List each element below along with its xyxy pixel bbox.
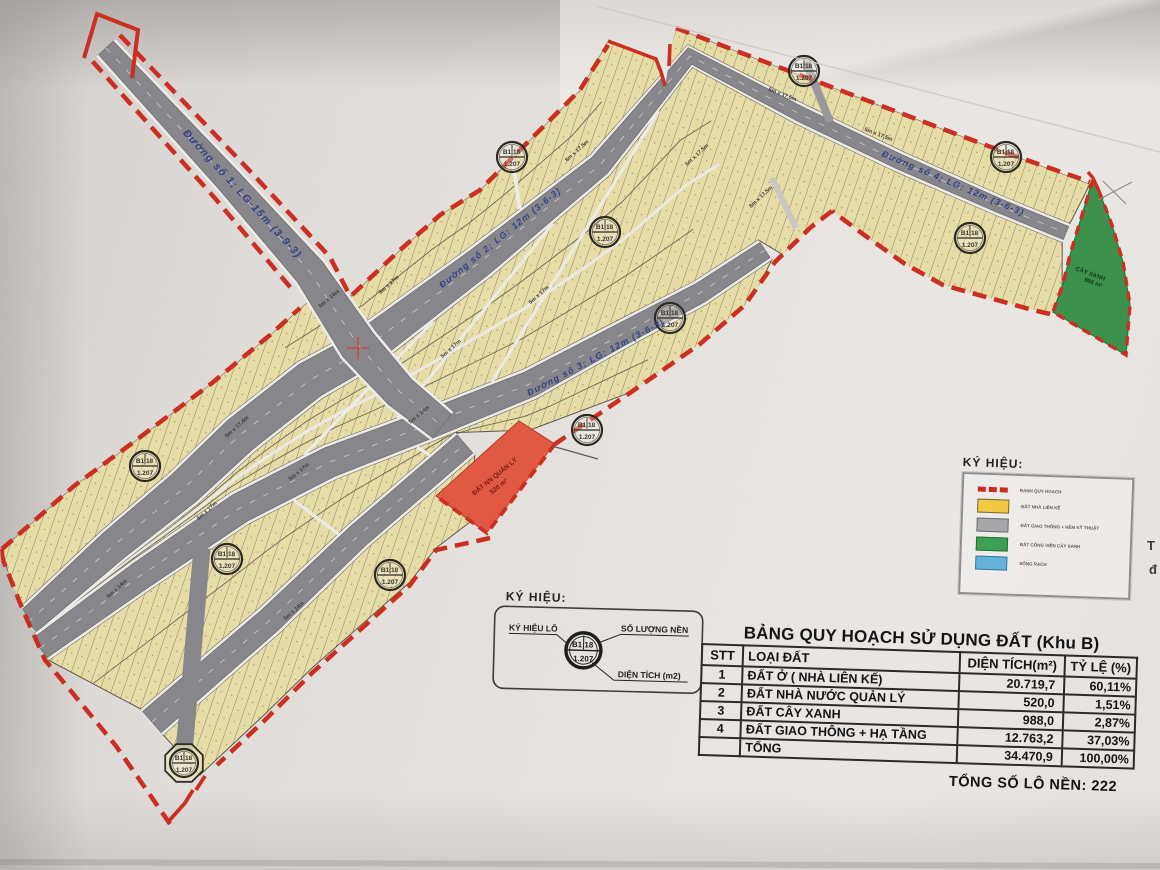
svg-text:KÝ HIỆU LÔ: KÝ HIỆU LÔ [509, 621, 558, 633]
svg-text:1.207: 1.207 [573, 654, 594, 664]
svg-text:SỐ LƯỢNG NỀN: SỐ LƯỢNG NỀN [621, 622, 688, 635]
svg-text:DIỆN TÍCH (m2): DIỆN TÍCH (m2) [618, 668, 681, 681]
svg-text:B1 18: B1 18 [572, 640, 594, 650]
